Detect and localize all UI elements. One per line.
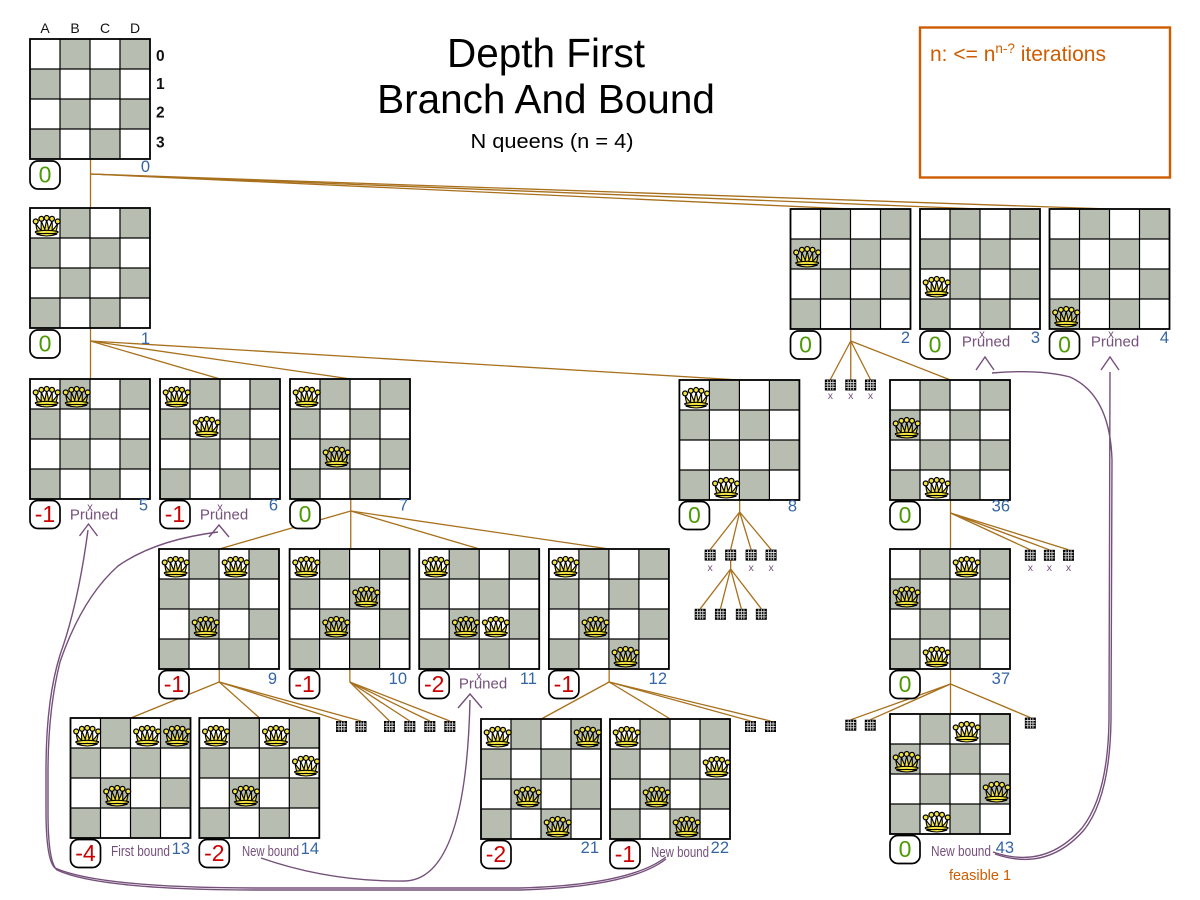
svg-text:-1: -1 — [615, 841, 635, 867]
svg-text:x: x — [708, 562, 714, 574]
svg-text:x: x — [1047, 562, 1053, 574]
svg-text:0: 0 — [141, 158, 150, 176]
svg-text:x: x — [1066, 562, 1072, 574]
svg-text:2: 2 — [156, 105, 165, 122]
svg-text:New bound: New bound — [651, 845, 709, 861]
svg-text:-2: -2 — [204, 840, 224, 866]
svg-text:0: 0 — [799, 332, 812, 358]
svg-text:11: 11 — [520, 670, 537, 688]
svg-text:5: 5 — [139, 497, 148, 515]
svg-text:21: 21 — [581, 839, 599, 857]
svg-text:-1: -1 — [294, 671, 314, 697]
svg-text:-2: -2 — [424, 671, 444, 697]
svg-text:D: D — [130, 20, 140, 36]
svg-text:0: 0 — [899, 836, 912, 862]
svg-text:Pruned: Pruned — [962, 334, 1010, 351]
svg-text:12: 12 — [649, 670, 667, 688]
svg-text:New bound: New bound — [931, 844, 991, 860]
svg-text:-2: -2 — [486, 841, 506, 867]
svg-text:37: 37 — [992, 670, 1010, 688]
svg-text:1: 1 — [156, 76, 165, 93]
svg-text:0: 0 — [1058, 332, 1071, 358]
svg-text:0: 0 — [688, 502, 701, 528]
svg-text:36: 36 — [992, 498, 1010, 516]
svg-text:New bound: New bound — [242, 844, 299, 860]
svg-text:Pruned: Pruned — [1091, 334, 1139, 351]
svg-text:0: 0 — [156, 48, 165, 65]
svg-text:0: 0 — [899, 671, 912, 697]
svg-text:0: 0 — [299, 501, 312, 527]
svg-text:3: 3 — [1031, 329, 1040, 347]
svg-text:x: x — [868, 390, 874, 402]
svg-text:x: x — [828, 390, 834, 402]
svg-text:13: 13 — [172, 840, 190, 858]
svg-text:Pruned: Pruned — [70, 507, 118, 524]
svg-text:-4: -4 — [75, 840, 96, 866]
svg-text:4: 4 — [1160, 329, 1169, 347]
svg-text:0: 0 — [929, 332, 942, 358]
svg-text:N queens (n = 4): N queens (n = 4) — [471, 131, 634, 153]
svg-text:Depth First: Depth First — [447, 30, 645, 76]
svg-text:22: 22 — [711, 839, 729, 857]
svg-text:14: 14 — [301, 840, 319, 858]
svg-text:Pruned: Pruned — [200, 507, 248, 524]
svg-text:-1: -1 — [165, 501, 185, 527]
svg-text:0: 0 — [899, 502, 912, 528]
svg-text:8: 8 — [788, 498, 797, 516]
svg-text:-1: -1 — [554, 671, 574, 697]
svg-text:x: x — [748, 562, 754, 574]
svg-text:A: A — [40, 20, 50, 36]
svg-text:6: 6 — [269, 497, 278, 515]
svg-text:9: 9 — [268, 670, 277, 688]
svg-text:7: 7 — [399, 497, 408, 515]
svg-text:First bound: First bound — [111, 844, 170, 860]
svg-text:3: 3 — [156, 135, 165, 152]
svg-text:0: 0 — [39, 162, 52, 188]
svg-text:10: 10 — [389, 670, 407, 688]
svg-text:1: 1 — [141, 330, 150, 348]
svg-text:43: 43 — [996, 839, 1014, 857]
svg-text:n: <= nn-? iterations: n: <= nn-? iterations — [930, 41, 1106, 66]
svg-text:x: x — [768, 562, 774, 574]
svg-text:feasible 1: feasible 1 — [949, 868, 1011, 884]
svg-text:x: x — [848, 390, 854, 402]
svg-text:-1: -1 — [164, 671, 184, 697]
svg-text:B: B — [70, 20, 79, 36]
svg-text:0: 0 — [39, 331, 52, 357]
svg-text:-1: -1 — [35, 501, 55, 527]
svg-text:x: x — [1028, 562, 1034, 574]
svg-text:Pruned: Pruned — [459, 676, 507, 693]
svg-text:Branch And Bound: Branch And Bound — [377, 76, 715, 122]
svg-text:C: C — [100, 20, 110, 36]
svg-text:2: 2 — [901, 329, 910, 347]
